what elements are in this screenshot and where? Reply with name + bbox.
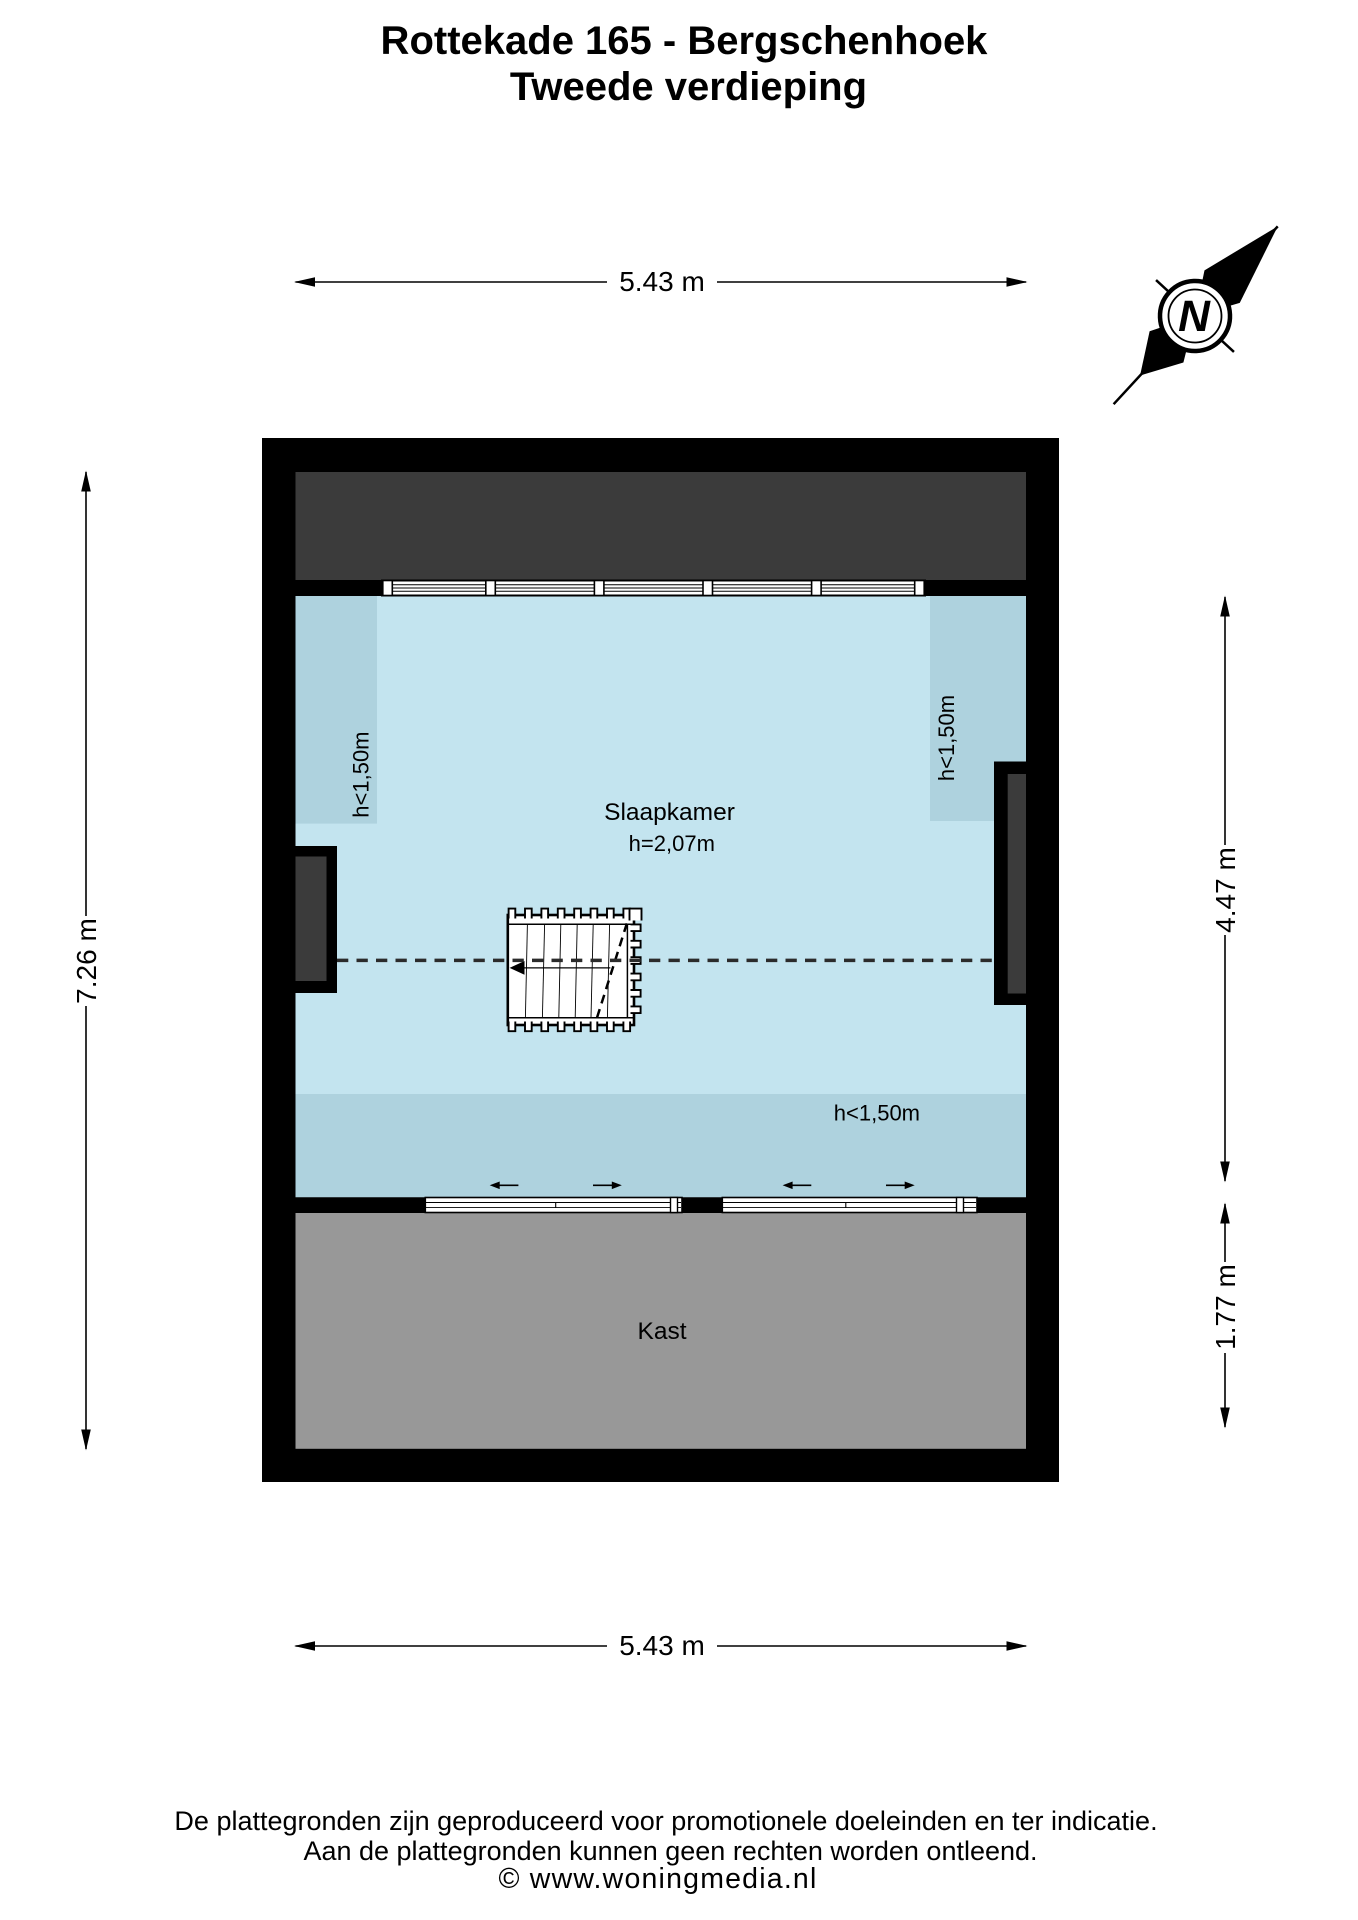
svg-text:De plattegronden zijn geproduc: De plattegronden zijn geproduceerd voor …: [174, 1806, 1157, 1836]
svg-text:h=2,07m: h=2,07m: [629, 831, 715, 856]
svg-text:4.47 m: 4.47 m: [1210, 847, 1241, 933]
svg-text:Tweede verdieping: Tweede verdieping: [510, 65, 867, 109]
svg-text:7.26 m: 7.26 m: [71, 918, 102, 1004]
svg-text:Kast: Kast: [637, 1318, 686, 1345]
svg-text:Aan de plattegronden kunnen ge: Aan de plattegronden kunnen geen rechten…: [303, 1836, 1037, 1866]
svg-text:1.77 m: 1.77 m: [1210, 1264, 1241, 1350]
svg-text:5.43 m: 5.43 m: [619, 1630, 705, 1661]
svg-text:© www.woningmedia.nl: © www.woningmedia.nl: [498, 1863, 817, 1895]
svg-text:h<1,50m: h<1,50m: [934, 695, 959, 781]
svg-text:N: N: [1178, 292, 1211, 341]
svg-text:h<1,50m: h<1,50m: [834, 1101, 920, 1126]
svg-text:h<1,50m: h<1,50m: [349, 731, 374, 817]
svg-text:Rottekade 165 - Bergschenhoek: Rottekade 165 - Bergschenhoek: [381, 19, 989, 63]
svg-text:Slaapkamer: Slaapkamer: [604, 799, 735, 826]
svg-text:5.43 m: 5.43 m: [619, 266, 705, 297]
